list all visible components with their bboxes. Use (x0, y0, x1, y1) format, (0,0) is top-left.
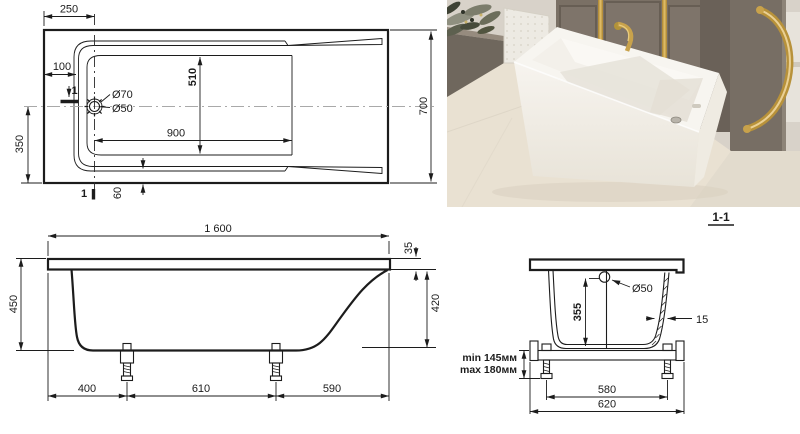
rim-outer-line (74, 41, 285, 171)
dim-label-400: 400 (78, 383, 96, 395)
section-marker-label: 1 (81, 188, 87, 200)
dim-label-620: 620 (598, 399, 616, 411)
drawing-svg: 1 1 250 100 Ø70 Ø50 510 900 350 60 7 (0, 0, 800, 434)
bathtub-photo (442, 0, 800, 207)
dim-label-d50: Ø50 (112, 103, 133, 115)
dim-label-60: 60 (112, 187, 124, 199)
overflow-hole (599, 272, 609, 282)
section-marker-bottom: 1 (81, 188, 94, 200)
slope-edge-bottom (288, 167, 382, 174)
dim-label-420: 420 (430, 294, 442, 312)
overflow-chrome (692, 104, 701, 108)
dim-label-510: 510 (187, 68, 199, 86)
section-marker-label: 1 (72, 85, 78, 97)
adjustable-foot-left (121, 344, 134, 381)
dim-label-590: 590 (323, 383, 341, 395)
side-rim (48, 259, 390, 270)
dim-label-610: 610 (192, 383, 210, 395)
dim-label-d70: Ø70 (112, 89, 133, 101)
dim-label-100: 100 (53, 61, 71, 73)
section-wall-hatching (652, 278, 668, 345)
dim-label-355: 355 (572, 303, 584, 321)
dim-label-580: 580 (598, 384, 616, 396)
section-view: 1-1 Ø50 355 15 (460, 210, 734, 414)
dim-label-sec-d50: Ø50 (632, 283, 653, 295)
dim-label-700: 700 (418, 97, 430, 115)
dim-label-900: 900 (167, 128, 185, 140)
frame-foot-right (662, 360, 673, 379)
dim-label-15: 15 (696, 314, 708, 326)
dim-label-450: 450 (8, 295, 20, 313)
side-tub-profile (72, 270, 388, 351)
dim-label-350: 350 (14, 135, 26, 153)
frame-foot-left (541, 360, 552, 379)
dim-label-min-height: min 145мм (462, 352, 517, 364)
dim-label-35: 35 (403, 242, 415, 254)
section-view-label: 1-1 (712, 210, 730, 224)
side-view: 1 600 400 610 590 450 (8, 223, 442, 401)
dim-label-max-height: max 180мм (460, 364, 517, 376)
overflow-leader (612, 280, 630, 287)
dim-label-1600: 1 600 (204, 223, 232, 235)
slope-edge-top (288, 39, 382, 46)
rim-joins (285, 41, 288, 171)
adjustable-foot-right (270, 344, 283, 381)
drain-chrome (671, 117, 681, 123)
rim-inner-line (79, 46, 289, 167)
section-marker-top: 1 (61, 85, 79, 102)
dim-label-250: 250 (60, 4, 78, 16)
bathtub-drawing-page: 1 1 250 100 Ø70 Ø50 510 900 350 60 7 (0, 0, 800, 434)
top-view: 1 1 250 100 Ø70 Ø50 510 900 350 60 7 (14, 4, 438, 201)
